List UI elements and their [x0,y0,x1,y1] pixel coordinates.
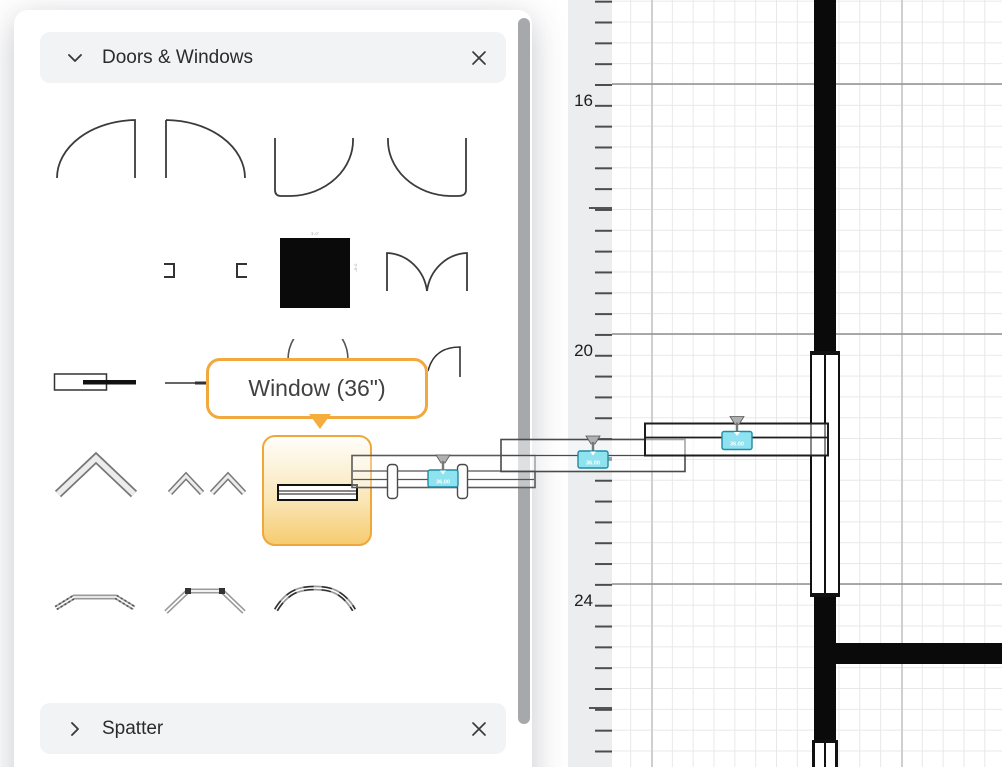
shape-arch-door[interactable] [286,339,350,360]
ruler-ticks [595,0,612,767]
shape-frame-end-right[interactable] [235,262,248,279]
placed-window-bottom[interactable] [812,740,838,767]
close-icon[interactable] [469,48,489,68]
column-dim-side: 3'-0" [353,264,358,272]
section-title: Spatter [102,718,469,740]
shape-corner-door[interactable] [428,345,468,379]
shape-door-90-left[interactable] [55,118,140,180]
grid-major-hline [572,83,1002,85]
shape-door-90-right[interactable] [163,118,248,180]
shape-bifold-small-door[interactable] [209,470,247,498]
wall-vertical-bottom[interactable] [814,595,836,741]
ruler-label-20: 20 [568,341,593,361]
shape-bifold-door[interactable] [52,450,142,502]
shape-bay-window-angled[interactable] [164,584,246,618]
shape-tooltip: Window (36") [206,358,428,419]
grid-major-hline [572,333,1002,335]
ruler-mid-tick [589,207,612,209]
window-glass-line [824,355,826,593]
chevron-down-icon[interactable] [65,48,85,68]
window-36-glyph [277,484,358,501]
shape-door-90-down-left[interactable] [273,138,355,200]
tooltip-text: Window (36") [248,375,385,402]
vertical-ruler: 16 20 24 [568,0,612,767]
tooltip-arrow [309,414,331,429]
placed-window-vertical[interactable] [810,351,840,597]
floorplan-app: 16 20 24 Doors & Windows [0,0,1002,767]
grid-major-vline [651,0,653,767]
column-dim-top: 3'-0" [280,231,350,236]
selected-shape-tile-window-36[interactable] [262,435,372,546]
shape-door-90-down-right[interactable] [386,138,468,200]
shape-bay-window[interactable] [54,586,136,614]
section-header-doors-windows[interactable]: Doors & Windows [40,32,506,83]
shape-bow-window[interactable] [274,584,356,616]
chevron-right-icon[interactable] [65,719,85,739]
window-glass-line [824,743,826,767]
close-icon[interactable] [469,719,489,739]
shape-pocket-door[interactable] [53,371,138,395]
shape-double-door[interactable] [385,247,470,293]
section-header-spatter[interactable]: Spatter [40,703,506,754]
ruler-mid-tick [589,457,612,459]
wall-horizontal[interactable] [836,643,1002,664]
shape-bifold-pair-door[interactable] [167,470,205,498]
ruler-label-16: 16 [568,91,593,111]
shape-column-solid[interactable] [280,238,350,308]
panel-scrollbar-thumb[interactable] [518,18,530,724]
wall-vertical-top[interactable] [814,0,836,352]
shape-frame-end-left[interactable] [163,262,176,279]
grid-major-hline [572,583,1002,585]
ruler-label-24: 24 [568,591,593,611]
ruler-mid-tick [589,707,612,709]
shape-sliding-door[interactable] [165,379,211,387]
section-title: Doors & Windows [102,47,469,69]
